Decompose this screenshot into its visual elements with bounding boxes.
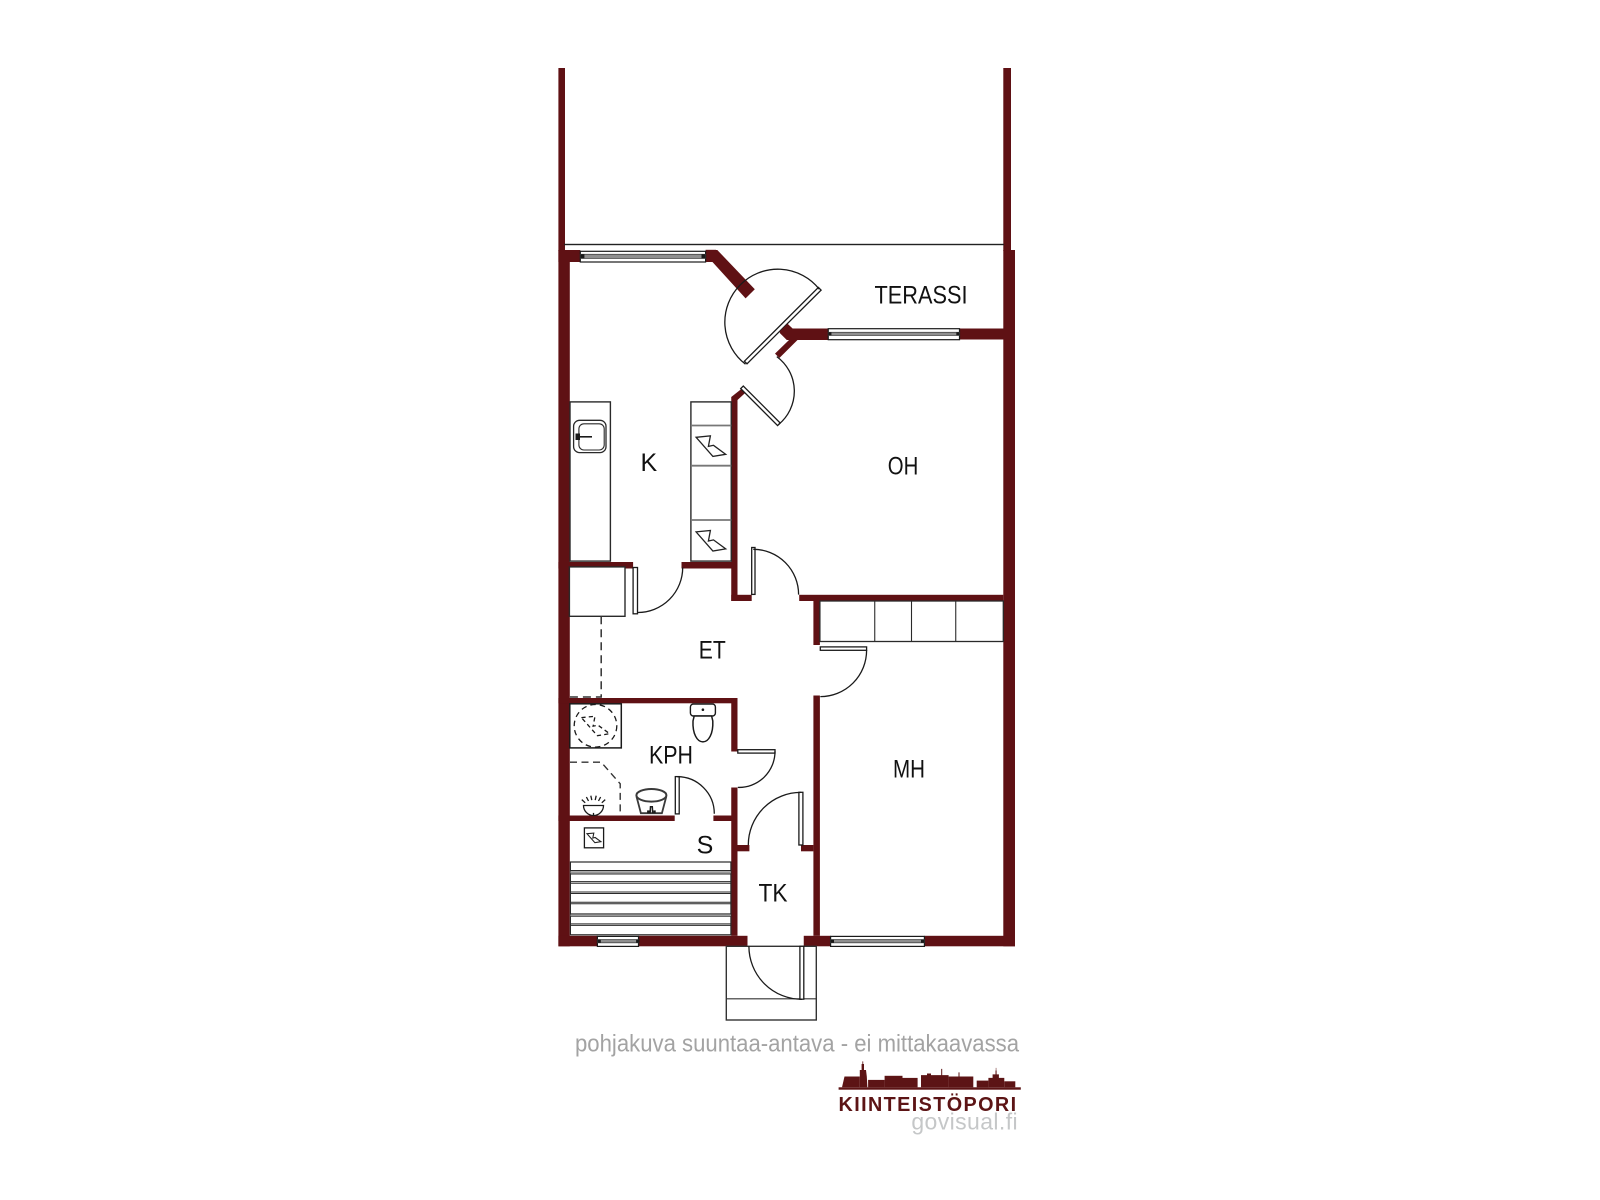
svg-text:S: S: [697, 832, 714, 860]
svg-text:K: K: [641, 449, 658, 477]
svg-text:TERASSI: TERASSI: [875, 282, 968, 310]
svg-text:pohjakuva suuntaa-antava - ei: pohjakuva suuntaa-antava - ei mittakaava…: [575, 1031, 1020, 1058]
svg-text:KPH: KPH: [649, 742, 693, 770]
svg-text:TK: TK: [759, 880, 788, 908]
svg-text:ET: ET: [699, 637, 726, 665]
svg-text:govisual.fi: govisual.fi: [911, 1108, 1018, 1134]
svg-text:OH: OH: [888, 453, 919, 481]
svg-text:MH: MH: [893, 756, 925, 784]
